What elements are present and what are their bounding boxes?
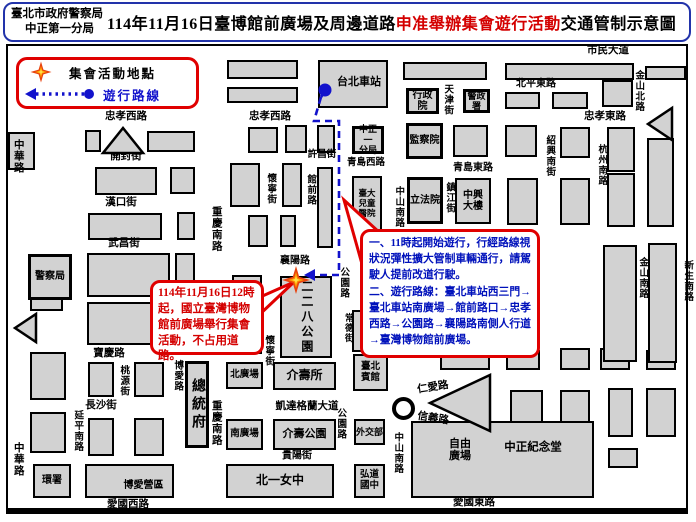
city-block <box>602 80 633 107</box>
road-label: 延平南路 <box>72 410 82 452</box>
building-label: 弘道 國中 <box>360 470 379 492</box>
road-label: 天津街 <box>442 84 452 116</box>
road-label: 中華路 <box>12 442 24 477</box>
title-red-highlight: 申准舉辦集會遊行活動 <box>396 16 561 33</box>
city-block <box>282 163 302 207</box>
city-block <box>648 243 677 363</box>
ntu-childrens-hospital: 臺大 兒童 醫院 <box>352 176 382 232</box>
road-label: 公園路 <box>338 267 348 299</box>
building-label: 中興 大樓 <box>463 190 483 213</box>
agency-block: 臺北市政府警察局 中正第一分局 <box>11 7 103 37</box>
parade-route-label: 遊行路線 <box>103 85 161 104</box>
city-block <box>95 167 157 195</box>
road-label: 青島西路 <box>347 158 385 168</box>
building-label: 北一女中 <box>256 474 304 488</box>
city-block <box>88 418 114 456</box>
city-block <box>248 215 268 247</box>
road-label: 中山南路 <box>392 432 402 474</box>
road-label: 忠孝西路 <box>105 111 147 123</box>
south-plaza: 南廣場 <box>226 419 263 450</box>
building-label: 警察局 <box>35 271 65 283</box>
legend-route-row: 遊行路線 <box>23 83 192 105</box>
city-block <box>317 167 333 248</box>
city-block <box>227 60 298 79</box>
city-block <box>603 245 637 362</box>
building-label: 臺北 賓館 <box>361 362 380 384</box>
road-label: 懷寧街 <box>263 335 273 367</box>
road-label: 襄陽路 <box>280 256 310 267</box>
city-block <box>645 66 686 80</box>
jieshou-hall: 介壽所 <box>273 362 336 390</box>
228-park: 二二八公園 <box>280 276 332 358</box>
assembly-note-callout: 114年11月16日12時起，國立臺灣博物館前廣場舉行集會活動，不占用道路。 <box>150 280 264 355</box>
road-label: 忠孝東路 <box>584 111 626 123</box>
building-label: 中正一 分局 <box>355 124 381 155</box>
city-block <box>170 167 195 194</box>
city-block <box>230 163 260 207</box>
roundabout-circle <box>392 397 415 420</box>
city-block <box>248 127 278 153</box>
epa-building: 環署 <box>33 464 71 498</box>
road-label: 市民大道 <box>587 45 629 57</box>
building-label: 外交部 <box>356 427 383 437</box>
road-label: 懷寧街 <box>265 173 275 205</box>
road-label: 中山南路 <box>393 186 403 228</box>
title-part2: 交通管制示意圖 <box>561 16 677 33</box>
presidential-office: 總統府 <box>185 361 209 448</box>
building-label: 行政院 <box>409 90 436 113</box>
agency-name: 臺北市政府警察局 <box>11 7 103 22</box>
control-yuan: 監察院 <box>406 123 443 159</box>
city-block <box>453 125 488 157</box>
city-block <box>505 63 634 80</box>
city-block <box>177 212 195 240</box>
road-label: 許昌街 <box>308 150 337 160</box>
city-block <box>30 412 66 453</box>
road-label: 重慶南路 <box>210 400 222 446</box>
building-label: 立法院 <box>410 195 440 207</box>
road-label: 寶慶路 <box>93 348 125 360</box>
city-block <box>85 130 101 152</box>
route-note-line1: 一、11時起開始遊行，行經路線視狀況彈性擴大管制車輛通行，請駕駛人提前改道行駛。 <box>369 235 531 284</box>
building-label: 環署 <box>42 475 62 487</box>
route-note-line2: 二、遊行路線：臺北車站西三門→臺北車站南廣場→館前路口→忠孝西路→公園路→襄陽路… <box>369 284 531 349</box>
building-label: 博愛營區 <box>124 480 164 492</box>
police-station: 警察局 <box>28 254 72 300</box>
city-block <box>505 125 537 157</box>
building-label: 總統府 <box>189 378 205 432</box>
legend-box: 集會活動地點 遊行路線 <box>16 57 199 109</box>
road-label: 武昌街 <box>108 238 140 250</box>
executive-yuan: 行政院 <box>406 88 439 114</box>
city-block <box>507 178 538 225</box>
road-label: 漢口街 <box>105 197 137 209</box>
city-block <box>227 87 298 103</box>
building-label: 南廣場 <box>230 429 259 440</box>
header: 臺北市政府警察局 中正第一分局 114年11月16日臺博館前廣場及周邊道路申准舉… <box>3 2 691 42</box>
city-block <box>646 388 676 437</box>
legend-assembly-row: 集會活動地點 <box>23 61 192 83</box>
road-label: 長沙街 <box>85 400 117 412</box>
road-label: 中正紀念堂 <box>504 442 562 455</box>
building-label: 台北車站 <box>337 76 381 89</box>
road-label: 貴陽街 <box>282 451 312 462</box>
city-block <box>608 388 633 437</box>
road-label: 館前路 <box>305 174 315 206</box>
assembly-star-icon <box>23 61 59 83</box>
taipei-main-station: 台北車站 <box>318 60 388 108</box>
precinct-name: 中正第一分局 <box>25 22 103 37</box>
road-label: 北平東路 <box>516 79 556 90</box>
road-label: 愛國東路 <box>453 497 495 509</box>
building-label: 二二八公園 <box>299 280 313 355</box>
building-label: 介壽所 <box>286 369 322 383</box>
road-label: 新生南路 <box>682 260 692 302</box>
city-block <box>505 92 540 109</box>
city-block <box>280 215 296 247</box>
taipei-first-girls-high-school: 北一女中 <box>226 464 334 498</box>
city-block <box>134 362 164 397</box>
city-block <box>134 418 164 456</box>
road-label: 紹興南街 <box>544 135 554 177</box>
road-label: 桃源街 <box>118 365 128 397</box>
jieshou-park: 介壽公園 <box>273 419 336 450</box>
cks-memorial-hall <box>411 421 594 498</box>
zhongzheng-first-precinct: 中正一 分局 <box>352 126 384 154</box>
taipei-guest-house: 臺北 賓館 <box>353 354 388 391</box>
building-label: 臺大 兒童 醫院 <box>358 189 375 218</box>
road-label: 金山南路 <box>637 257 647 299</box>
road-label: 青島東路 <box>453 163 493 174</box>
building-label: 北廣場 <box>230 370 259 381</box>
building-label: 監察院 <box>410 135 440 147</box>
city-block <box>560 127 590 158</box>
parade-route-line-icon <box>23 86 97 102</box>
ministry-of-foreign-affairs: 外交部 <box>354 419 385 445</box>
boai-camp: 博愛營區 <box>85 464 174 498</box>
road-label: 金山北路 <box>633 70 643 112</box>
north-plaza: 北廣場 <box>226 362 263 389</box>
city-block <box>285 125 307 153</box>
route-description-callout: 一、11時起開始遊行，行經路線視狀況彈性擴大管制車輛通行，請駕駛人提前改道行駛。… <box>360 229 540 358</box>
road-label: 重慶南路 <box>210 206 222 252</box>
road-label: 忠孝西路 <box>249 111 291 123</box>
traffic-control-notice: 臺北市政府警察局 中正第一分局 114年11月16日臺博館前廣場及周邊道路申准舉… <box>0 0 696 522</box>
city-block <box>647 138 674 227</box>
building-label: 介壽公園 <box>283 428 327 441</box>
city-block <box>147 131 195 152</box>
city-block <box>30 352 66 400</box>
city-block <box>560 178 590 225</box>
road-label: 常德街 <box>343 313 353 343</box>
city-block <box>608 448 638 468</box>
city-block <box>607 173 635 227</box>
city-block <box>88 362 114 397</box>
map-title: 114年11月16日臺博館前廣場及周邊道路申准舉辦集會遊行活動交通管制示意圖 <box>107 10 676 34</box>
national-police-agency: 警政署 <box>463 89 490 113</box>
city-block <box>560 348 590 370</box>
road-label: 公園路 <box>335 408 345 440</box>
title-part1: 114年11月16日臺博館前廣場及周邊道路 <box>107 16 396 33</box>
city-block <box>403 62 487 80</box>
road-label: 仁愛路 <box>417 380 450 396</box>
assembly-location-label: 集會活動地點 <box>69 63 156 82</box>
city-block <box>552 92 588 109</box>
road-label: 開封街 <box>110 151 142 163</box>
road-label: 自由 廣場 <box>449 438 471 462</box>
road-label: 凱達格蘭大道 <box>276 401 339 413</box>
zhongxing-building: 中興 大樓 <box>455 178 491 224</box>
city-block <box>88 213 162 240</box>
road-label: 鎮江街 <box>444 182 454 214</box>
building-label: 警政署 <box>466 91 487 112</box>
city-block <box>607 127 635 172</box>
legislative-yuan: 立法院 <box>407 177 443 224</box>
road-label: 中華路 <box>12 139 24 174</box>
road-label: 杭州南路 <box>596 144 606 186</box>
hongdao-junior-high: 弘道 國中 <box>354 464 385 498</box>
road-label: 愛國西路 <box>107 499 149 511</box>
